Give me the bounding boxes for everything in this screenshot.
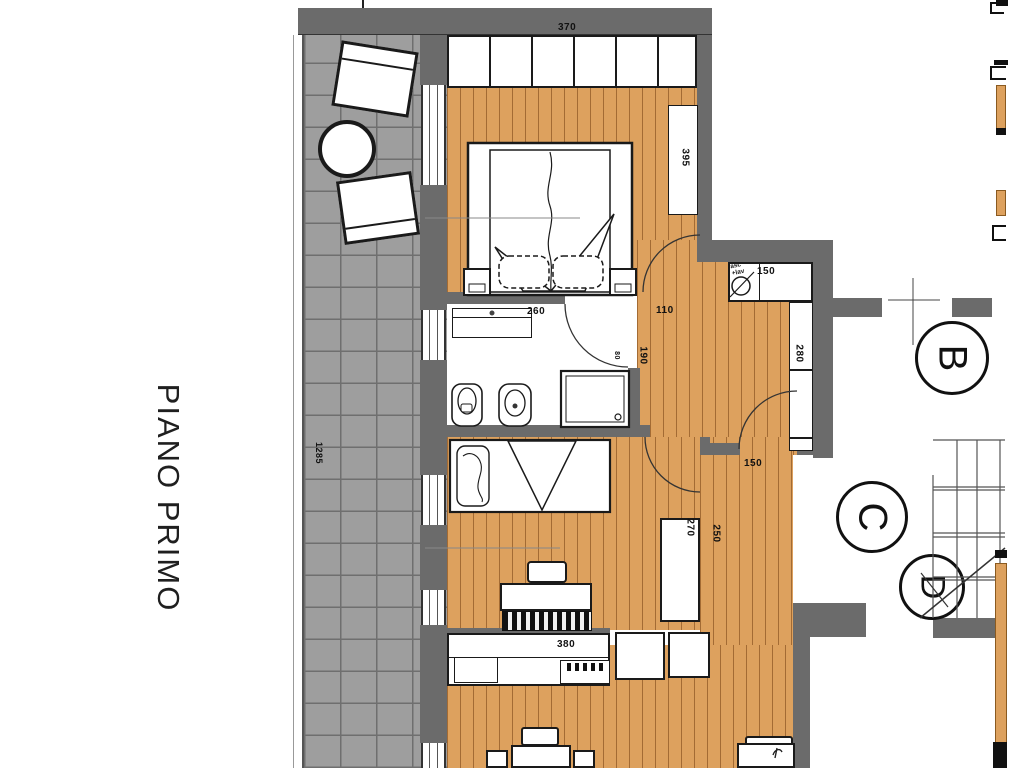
dim-wardrobe-row: 370 [558,22,576,33]
dim-bedroom1-depth: 395 [680,148,691,166]
drawing-fragment [995,563,1007,745]
decor-glyph [773,748,782,758]
single-bed-icon [450,440,610,512]
drawing-fragment [996,190,1006,216]
drawing-fragment [992,225,1006,241]
dim-vanity: 260 [527,306,545,317]
plan-linework [0,0,1024,768]
door-arc [643,235,700,292]
dim-bath-door: 80 [613,351,620,360]
double-bed-icon [464,143,636,295]
dim-kitchen: 380 [557,639,575,650]
dim-hall-closet: 280 [794,344,805,362]
dim-terrace: 1285 [314,442,324,464]
drawing-fragment [990,66,1006,80]
faucet-dot [490,311,495,316]
dim-hall-width: 190 [638,346,649,364]
dim-wardrobe2: 270 [685,518,696,536]
washer-icon [730,272,754,297]
door-arc [645,437,700,492]
bathroom-fixtures [452,311,629,428]
dim-corridor: 250 [711,524,722,542]
drawing-fragment [990,2,1004,14]
dim-entry-closet: 150 [757,266,775,277]
drawing-fragment [996,85,1006,130]
drawing-fragment [994,60,1008,65]
drawing-fragment [995,550,1007,558]
dim-hall-node: 110 [656,305,674,316]
dim-corridor-door: 150 [744,458,762,469]
door-arc [739,391,797,449]
toilet-icon [452,384,482,426]
drawing-fragment [996,128,1006,135]
shower-icon [561,371,629,427]
floor-plan: PIANO PRIMO asc [0,0,1024,768]
stairs [920,440,1005,618]
drawing-fragment [993,742,1007,768]
